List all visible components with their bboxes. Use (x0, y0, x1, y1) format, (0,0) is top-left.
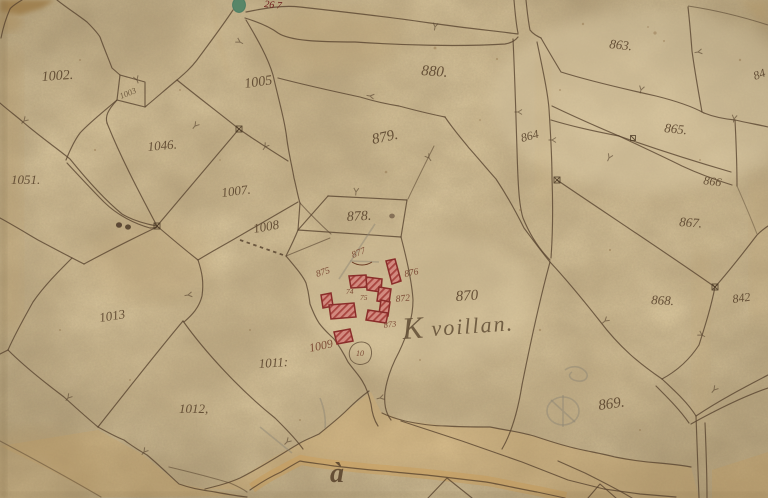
svg-text:870: 870 (455, 287, 479, 305)
svg-text:26 7: 26 7 (264, 0, 284, 12)
svg-text:863.: 863. (609, 36, 633, 53)
svg-text:1002.: 1002. (41, 68, 73, 85)
svg-text:866: 866 (703, 173, 723, 189)
svg-text:872: 872 (395, 294, 410, 305)
svg-text:880.: 880. (421, 63, 448, 81)
svg-text:873: 873 (383, 318, 397, 330)
svg-text:865.: 865. (664, 120, 688, 137)
svg-text:1046.: 1046. (147, 136, 177, 153)
svg-text:867.: 867. (679, 214, 703, 231)
svg-text:75: 75 (360, 293, 368, 302)
svg-text:74: 74 (346, 287, 354, 296)
svg-text:10: 10 (356, 349, 364, 358)
svg-text:868.: 868. (651, 292, 675, 308)
svg-text:1012,: 1012, (179, 401, 208, 416)
svg-text:1011:: 1011: (258, 354, 288, 371)
svg-text:878.: 878. (346, 209, 371, 225)
svg-text:1051.: 1051. (11, 172, 40, 187)
svg-text:842: 842 (731, 290, 751, 306)
svg-text:à: à (330, 458, 344, 489)
